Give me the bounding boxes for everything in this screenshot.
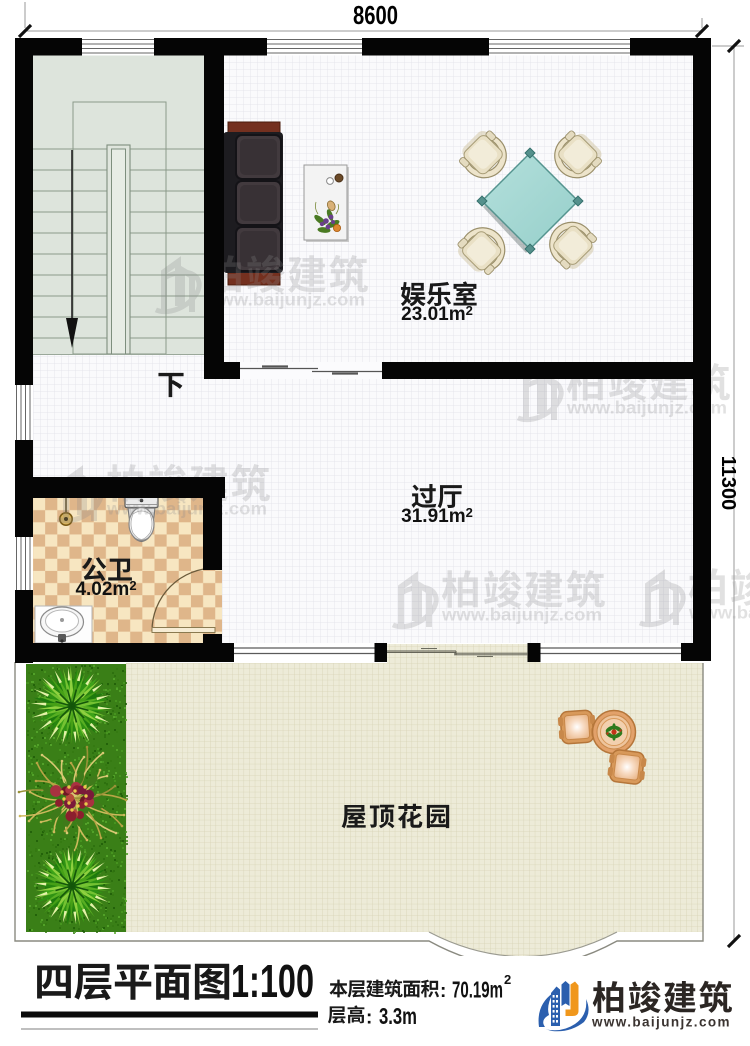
- svg-text:31.91m2: 31.91m2: [401, 505, 473, 527]
- svg-text:www.baijunjz.com: www.baijunjz.com: [106, 499, 267, 519]
- svg-text:1:100: 1:100: [231, 955, 314, 1007]
- svg-text::: :: [366, 1008, 372, 1029]
- svg-text:23.01m2: 23.01m2: [401, 303, 473, 325]
- svg-text:8600: 8600: [353, 0, 398, 30]
- svg-text:www.baijunjz.com: www.baijunjz.com: [441, 605, 602, 625]
- svg-text:70.19m: 70.19m: [452, 977, 503, 1003]
- svg-text:www.baijunjz.com: www.baijunjz.com: [204, 290, 365, 310]
- svg-text:4.02m2: 4.02m2: [75, 578, 136, 600]
- svg-text:3.3m: 3.3m: [379, 1003, 417, 1029]
- svg-text:2: 2: [504, 972, 511, 987]
- svg-text:11300: 11300: [717, 456, 739, 511]
- svg-text:www.baijunjz.com: www.baijunjz.com: [591, 1015, 731, 1030]
- svg-text::: :: [440, 981, 446, 1002]
